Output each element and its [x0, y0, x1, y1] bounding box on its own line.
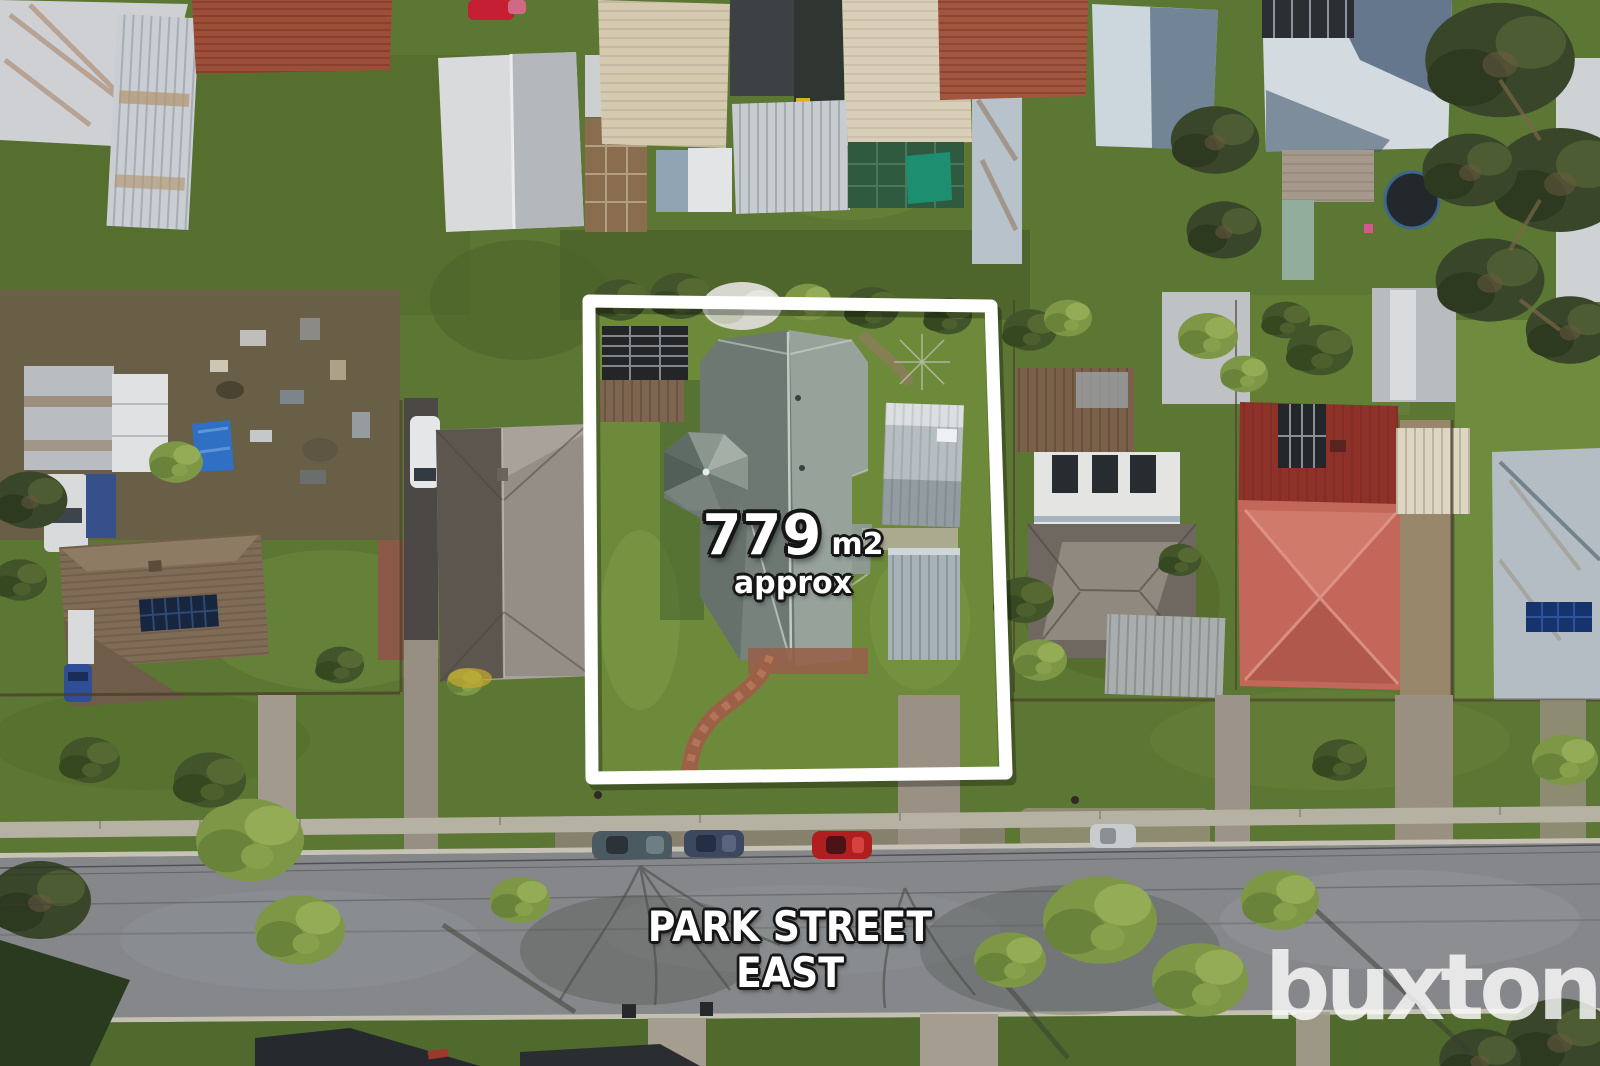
- flat-grey-shed: [24, 366, 114, 470]
- area-unit: m2: [831, 530, 883, 560]
- aerial-photo: 779 m2 approx PARK STREET EAST buxton: [0, 0, 1600, 1066]
- area-qualifier: approx: [691, 568, 895, 599]
- pergola-frame: [1262, 0, 1354, 38]
- silver-shed: [107, 14, 200, 230]
- area-overlay: 779 m2 approx: [688, 508, 898, 599]
- street-name-overlay: PARK STREET EAST: [601, 904, 979, 996]
- blue-van: [86, 474, 116, 538]
- parked-red-car-top: [468, 0, 514, 20]
- green-garden-shed: [1282, 200, 1314, 280]
- blue-car-driveway: [64, 664, 92, 702]
- white-garage: [1034, 452, 1180, 528]
- teal-tarp: [906, 152, 952, 204]
- corrugated-extension: [1105, 614, 1226, 698]
- clothesline: [894, 334, 950, 390]
- caravan: [68, 610, 94, 664]
- area-value: 779: [702, 508, 822, 564]
- pergola: [602, 326, 688, 380]
- dark-roof-shed: [794, 0, 844, 112]
- red-roof-house: [1238, 402, 1402, 690]
- far-right-house: [1492, 448, 1600, 700]
- carport: [888, 548, 960, 660]
- brand-watermark: buxton: [1248, 942, 1598, 1034]
- grey-shingle-house: [436, 424, 592, 682]
